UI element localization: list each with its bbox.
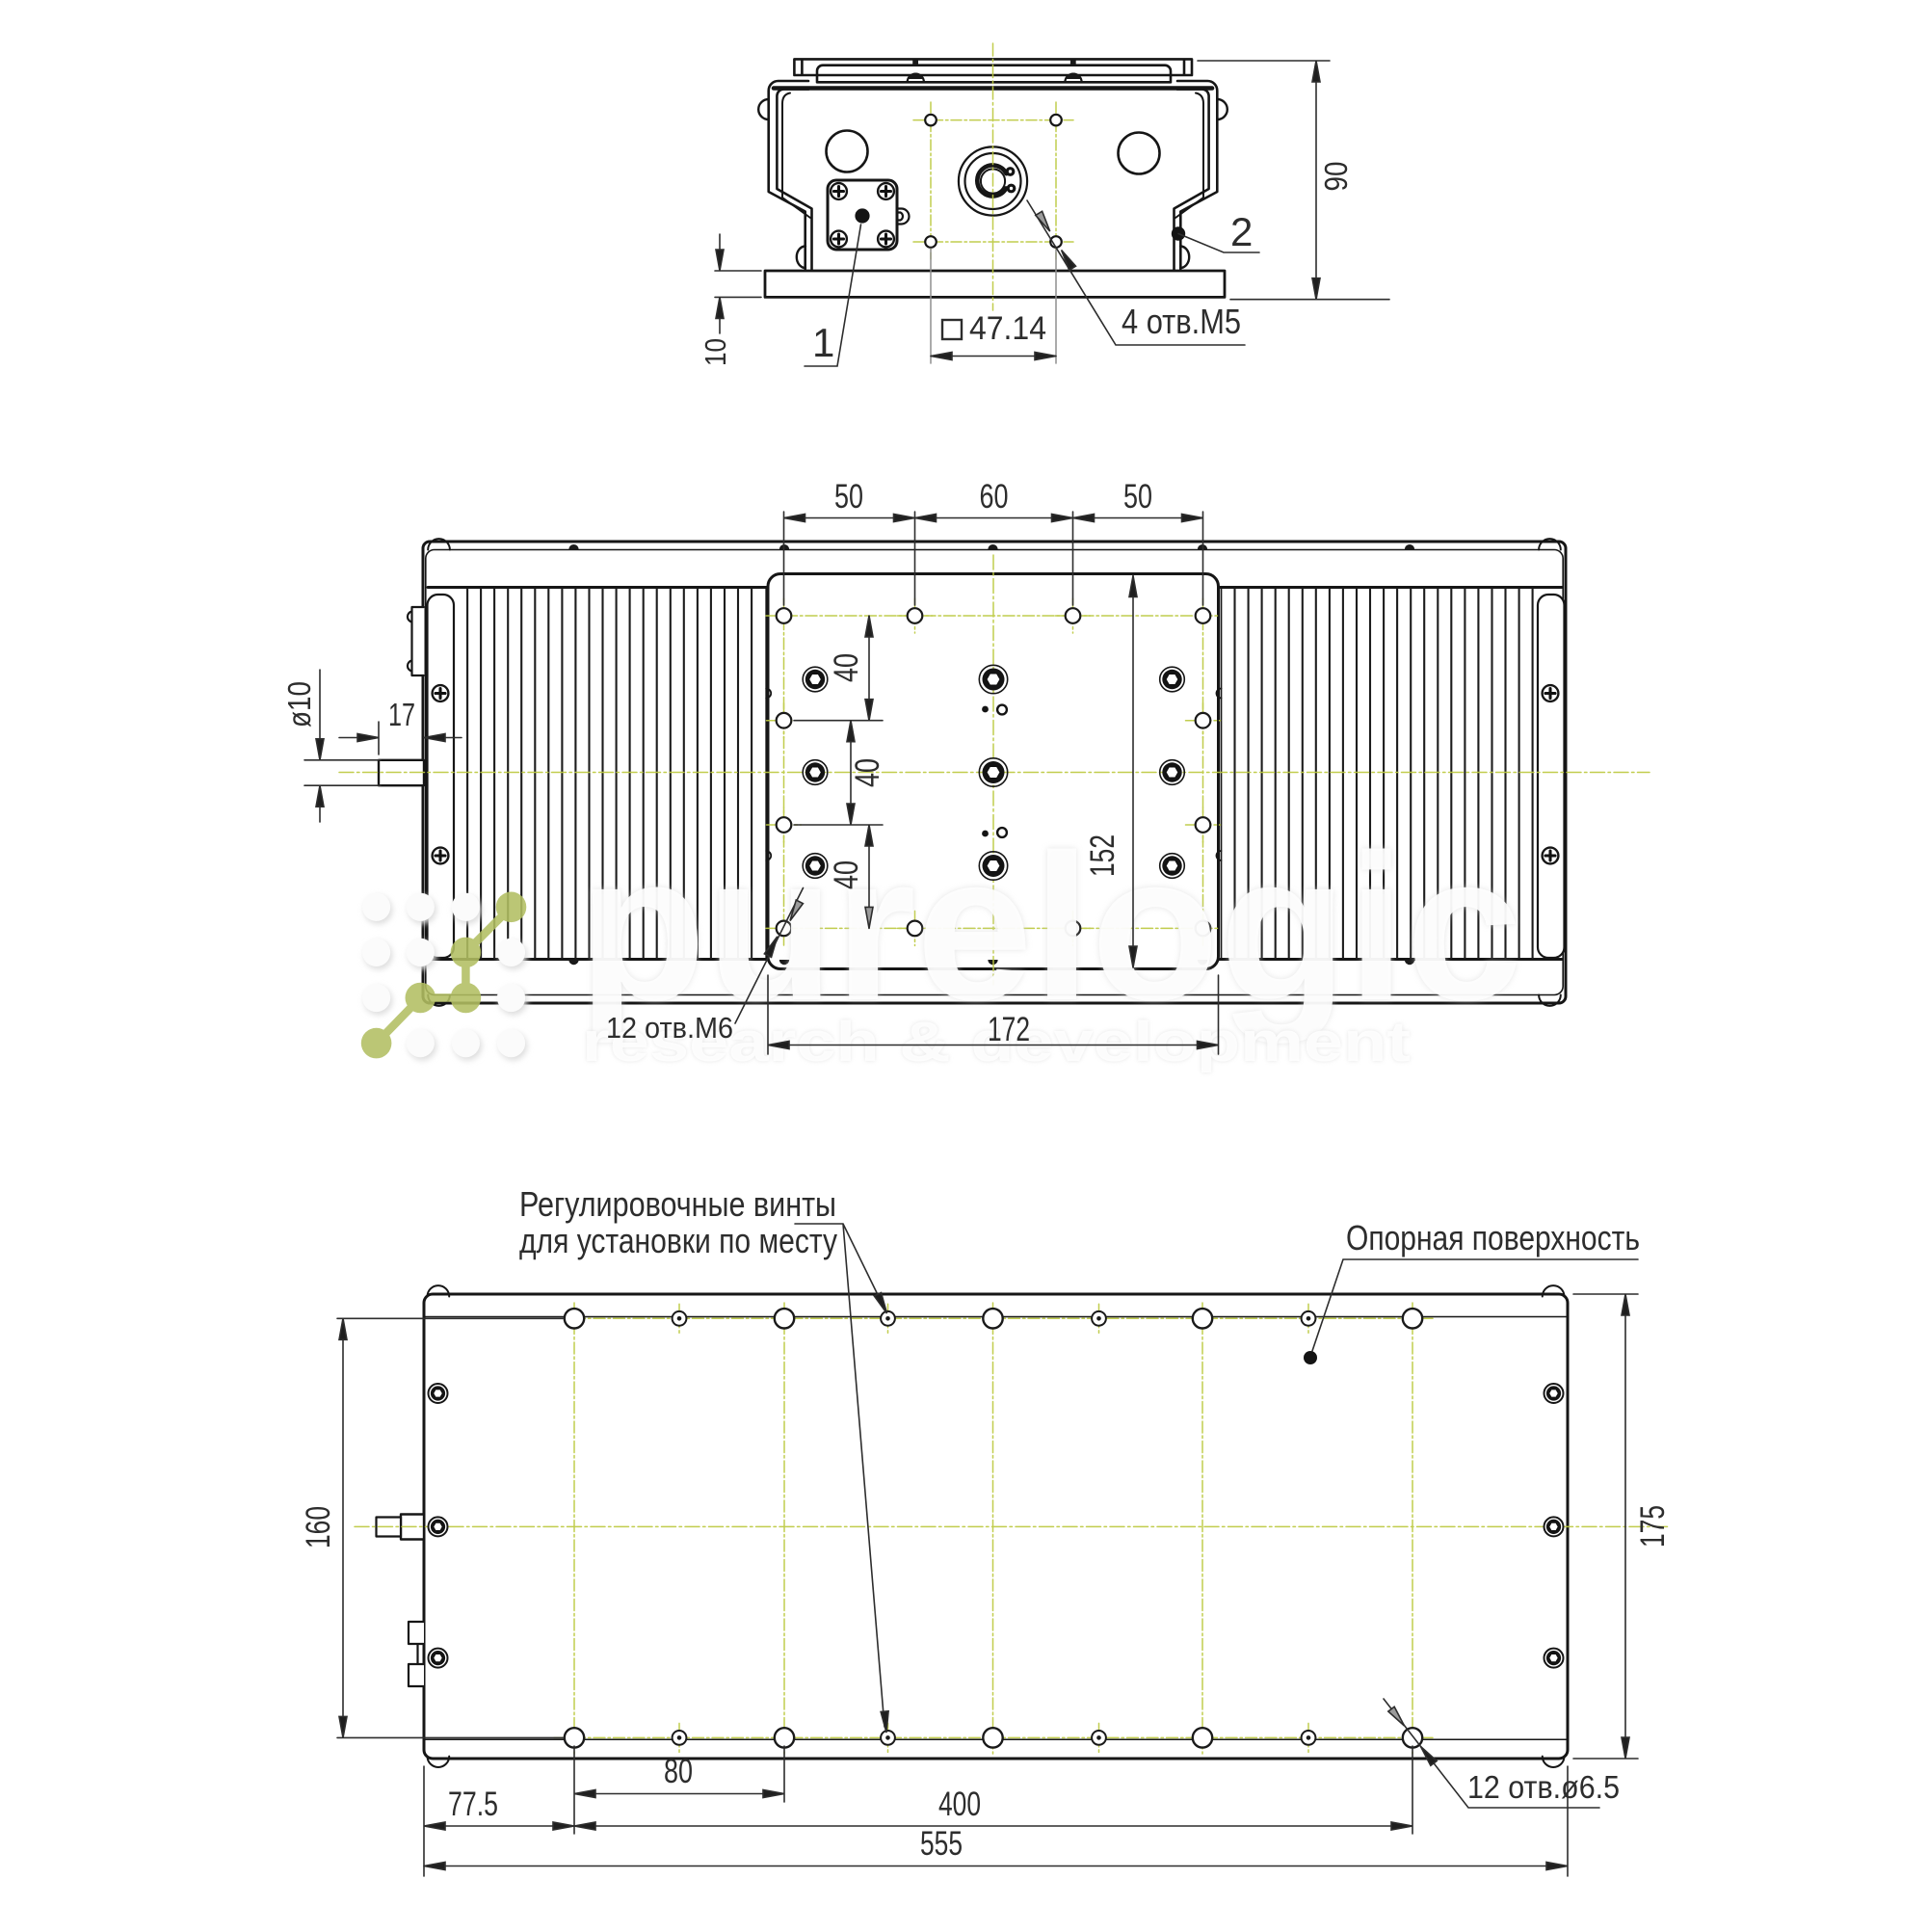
svg-text:12 отв.М6: 12 отв.М6 [606, 1011, 733, 1045]
svg-text:50: 50 [1123, 478, 1152, 516]
svg-text:77.5: 77.5 [448, 1786, 498, 1823]
svg-text:Регулировочные винты: Регулировочные винты [519, 1184, 836, 1224]
svg-text:60: 60 [980, 478, 1009, 516]
svg-text:2: 2 [1230, 209, 1253, 254]
svg-text:175: 175 [1634, 1505, 1672, 1548]
svg-text:для установки по месту: для установки по месту [519, 1221, 837, 1260]
svg-text:40: 40 [849, 758, 886, 787]
svg-text:555: 555 [920, 1825, 963, 1863]
svg-text:400: 400 [938, 1786, 981, 1823]
svg-text:Опорная поверхность: Опорная поверхность [1346, 1218, 1640, 1257]
svg-text:152: 152 [1084, 834, 1122, 877]
svg-text:90: 90 [1318, 162, 1354, 192]
svg-text:10: 10 [699, 338, 732, 366]
svg-text:47.14: 47.14 [969, 310, 1046, 347]
svg-text:12 отв.ø6.5: 12 отв.ø6.5 [1467, 1769, 1620, 1805]
svg-text:purelogic: purelogic [578, 810, 1522, 1044]
svg-text:17: 17 [388, 697, 415, 732]
svg-text:40: 40 [828, 653, 865, 682]
svg-text:160: 160 [300, 1506, 337, 1548]
svg-text:ø10: ø10 [281, 681, 317, 728]
svg-text:4 отв.М5: 4 отв.М5 [1122, 302, 1241, 341]
svg-text:172: 172 [988, 1011, 1030, 1048]
svg-text:50: 50 [834, 478, 863, 516]
svg-text:40: 40 [828, 860, 865, 889]
svg-text:80: 80 [664, 1753, 693, 1790]
svg-text:1: 1 [812, 320, 834, 365]
